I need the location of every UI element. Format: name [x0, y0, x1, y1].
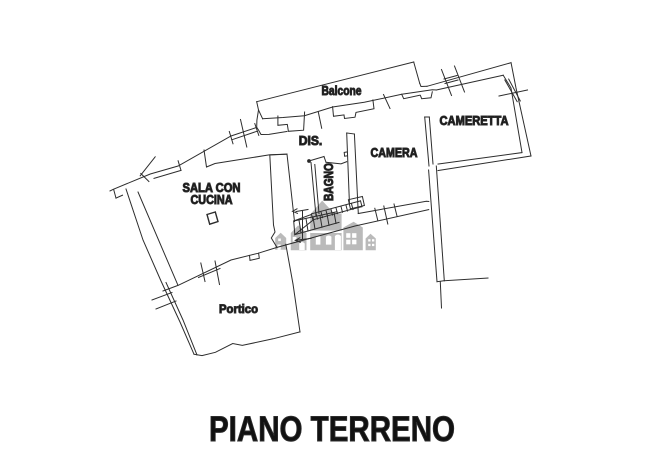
- svg-text:BAGNO: BAGNO: [322, 163, 336, 201]
- svg-text:CUCINA: CUCINA: [191, 193, 233, 207]
- svg-text:Balcone: Balcone: [322, 84, 362, 98]
- svg-text:PIANO TERRENO: PIANO TERRENO: [209, 410, 455, 449]
- svg-text:DIS.: DIS.: [299, 134, 323, 148]
- svg-text:Portico: Portico: [219, 302, 258, 316]
- svg-text:CAMERA: CAMERA: [371, 146, 418, 160]
- svg-text:CAMERETTA: CAMERETTA: [440, 114, 509, 128]
